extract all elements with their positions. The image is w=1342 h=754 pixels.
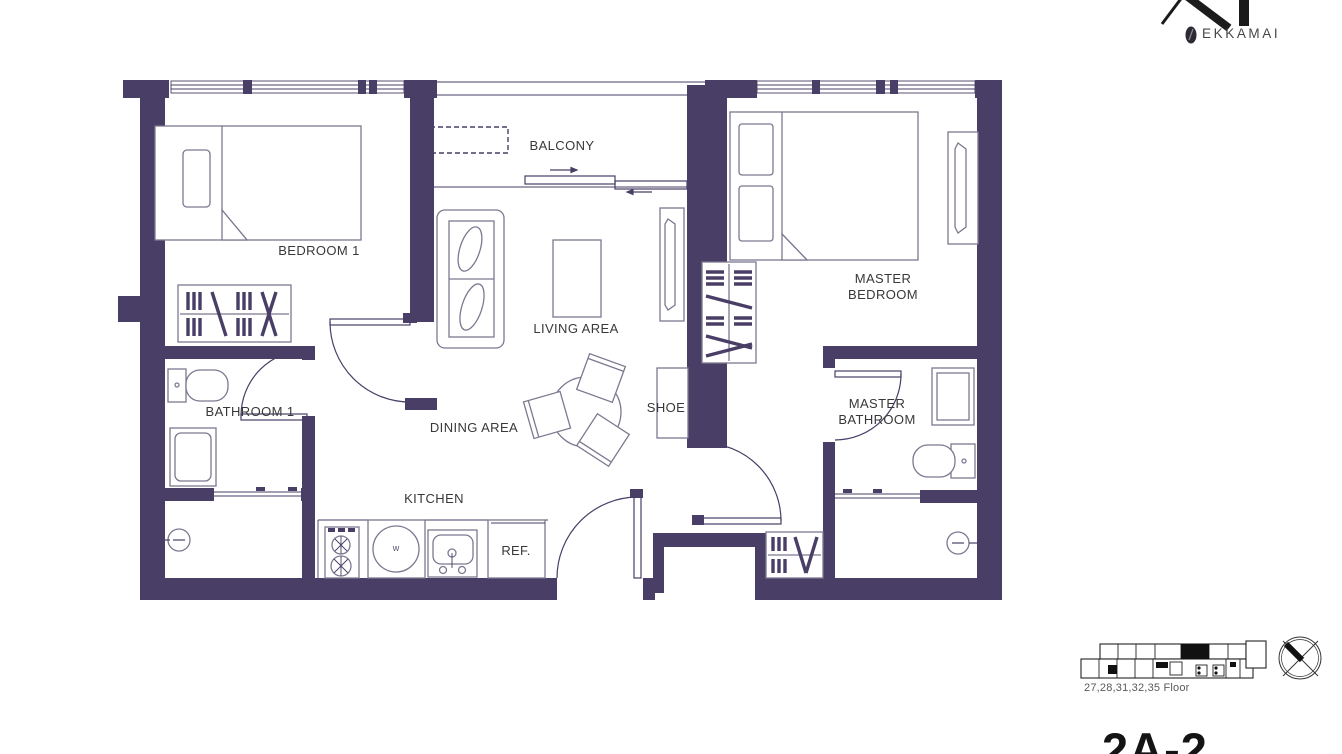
entrance-closet-icon — [766, 532, 823, 578]
master-bedroom-door — [692, 443, 781, 525]
highlighted-unit — [1181, 644, 1209, 659]
dining-set-icon — [523, 354, 629, 467]
toilet-icon — [913, 444, 975, 478]
vanity-icon — [170, 428, 216, 486]
bathroom1-fixtures — [165, 369, 303, 551]
brand-name: EKKAMAI — [1202, 26, 1280, 41]
sink-icon — [428, 530, 477, 577]
slide-arrow-right — [550, 168, 577, 173]
leaf-icon — [1186, 27, 1197, 44]
dining-chair — [577, 414, 630, 467]
floorplan-page: BEDROOM 1 BALCONY MASTER BEDROOM LIVING … — [0, 0, 1342, 754]
room-label-bedroom1: BEDROOM 1 — [278, 243, 360, 259]
shower-partition — [835, 489, 921, 498]
room-label-master-bathroom: MASTER BATHROOM — [838, 396, 915, 427]
keyplan-floors-note: 27,28,31,32,35 Floor — [1084, 682, 1190, 694]
master-bedroom-furniture — [702, 112, 978, 363]
ac-unit — [430, 127, 508, 153]
room-label-living-area: LIVING AREA — [533, 321, 618, 337]
refrigerator-label: REF. — [501, 543, 530, 558]
unit-name: 2A-2 — [1102, 722, 1208, 754]
windows — [171, 81, 975, 95]
tv-console-icon — [948, 132, 978, 244]
washer-label: w — [393, 543, 400, 553]
floor-plan-drawing — [0, 0, 1342, 754]
room-label-bathroom1: BATHROOM 1 — [206, 404, 295, 420]
dining-chair — [577, 354, 626, 403]
double-bed-icon — [730, 112, 918, 260]
balcony-railing — [437, 82, 705, 95]
room-label-kitchen: KITCHEN — [404, 491, 464, 507]
bedroom1-furniture — [155, 126, 361, 342]
shower-partition — [214, 487, 303, 496]
room-label-balcony: BALCONY — [530, 138, 595, 154]
closet-icon — [702, 262, 756, 363]
slide-arrow-left — [627, 190, 652, 195]
toilet-icon — [168, 369, 228, 402]
vanity-icon — [932, 368, 974, 425]
room-label-shoe: SHOE — [647, 400, 685, 416]
room-label-dining-area: DINING AREA — [430, 420, 518, 436]
room-label-master-bedroom: MASTER BEDROOM — [848, 271, 918, 302]
single-bed-icon — [155, 126, 361, 240]
stove-icon — [325, 527, 359, 578]
bedroom1-door — [330, 313, 417, 402]
living-tv-console-icon — [660, 208, 684, 321]
shower-head-icon — [947, 532, 977, 554]
north-indicator-icon — [1279, 637, 1321, 679]
shower-head-icon — [165, 529, 190, 551]
sliding-door — [434, 168, 687, 195]
entrance-door — [557, 489, 643, 578]
wardrobe-icon — [178, 285, 291, 342]
keyplan — [1081, 641, 1266, 678]
coffee-table-icon — [553, 240, 601, 317]
sofa-icon — [437, 210, 504, 348]
dining-chair — [523, 391, 570, 438]
